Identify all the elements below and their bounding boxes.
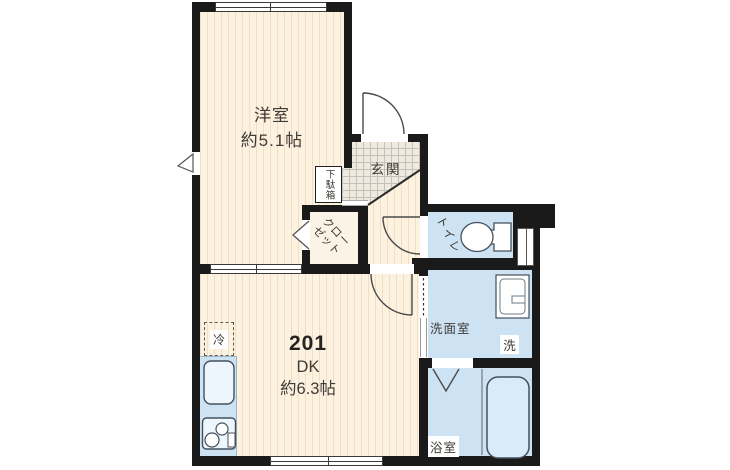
window-side: [517, 228, 534, 266]
partition-sliding-opening: [210, 264, 302, 274]
window-seam: [256, 265, 257, 273]
washroom-label: 洗面室: [430, 318, 471, 337]
entrance-label: 玄関: [352, 158, 420, 178]
vent-window-opening: [192, 152, 200, 175]
bathroom-door-opening: [432, 358, 473, 368]
dk-size: 約6.3帖: [238, 379, 378, 400]
wall-closet-right: [358, 205, 368, 266]
washer-space-label: 洗: [500, 335, 519, 354]
vent-window-icon: [178, 154, 193, 172]
shoe-cabinet-label: 下駄箱: [322, 169, 336, 201]
closet-label: クローゼット: [304, 211, 358, 265]
unit-number: 201: [238, 330, 378, 357]
window-seam: [270, 3, 271, 11]
western-room-name: 洋室: [200, 104, 344, 129]
refrigerator-space-box: 冷: [204, 322, 234, 356]
dk-type: DK: [238, 357, 378, 378]
washroom-entry-opening: [419, 276, 428, 358]
entrance-door-swing-icon: [363, 93, 404, 134]
wall-left: [192, 2, 200, 466]
western-room-size: 約5.1帖: [200, 129, 344, 154]
kitchen-counter-area: [200, 356, 237, 456]
toilet-label: トイレ: [426, 211, 472, 258]
dk-label: 201 DK 約6.3帖: [238, 330, 378, 400]
wall-western-right: [344, 2, 352, 168]
window-seam: [328, 457, 329, 465]
entrance-step-edge: [342, 200, 368, 206]
bathroom-label: 浴室: [428, 436, 459, 457]
window-top: [215, 2, 327, 12]
dk-door-opening: [370, 264, 414, 274]
window-bottom: [270, 456, 383, 466]
refrigerator-label: 冷: [210, 330, 228, 349]
floorplan-canvas: 下駄箱 冷 洋室 約5.1帖 201 DK 約6.3帖 玄関 クローゼット トイ…: [0, 0, 730, 470]
shoe-cabinet-box: 下駄箱: [315, 166, 342, 203]
entrance-door-opening: [361, 134, 408, 142]
western-room-label: 洋室 約5.1帖: [200, 104, 344, 153]
